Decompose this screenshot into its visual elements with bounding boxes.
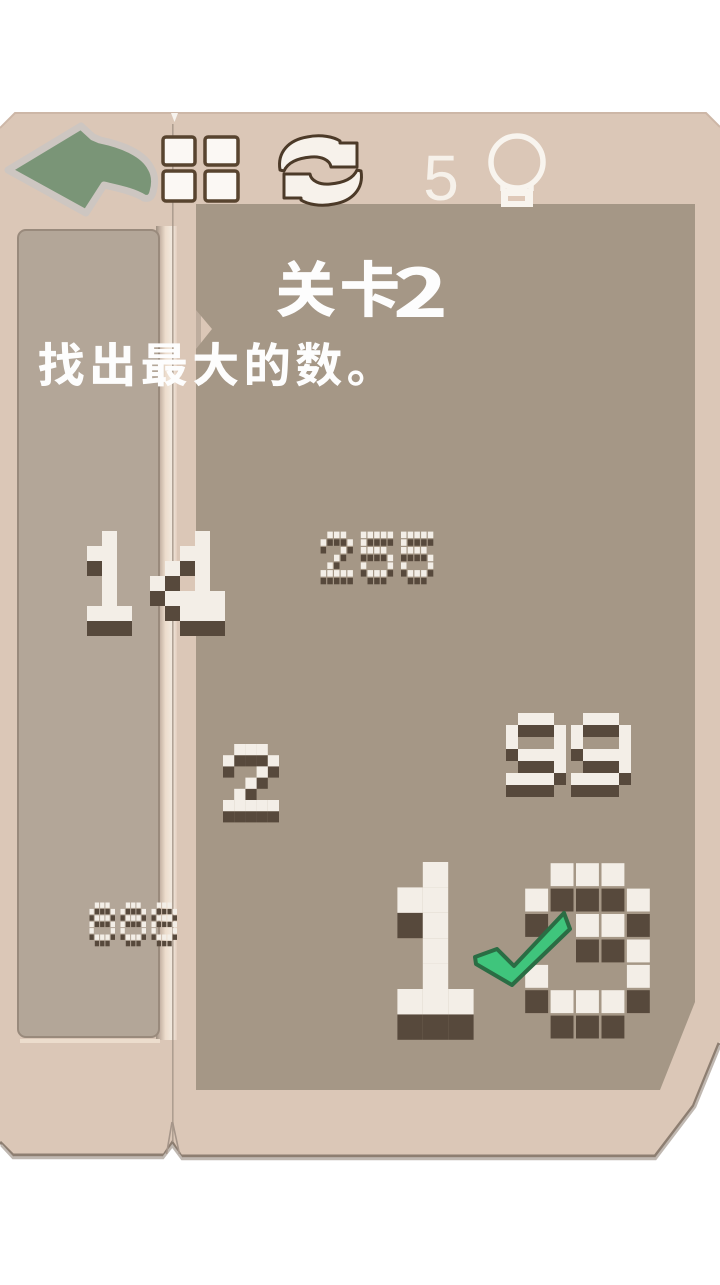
svg-text:5: 5 xyxy=(423,142,459,214)
